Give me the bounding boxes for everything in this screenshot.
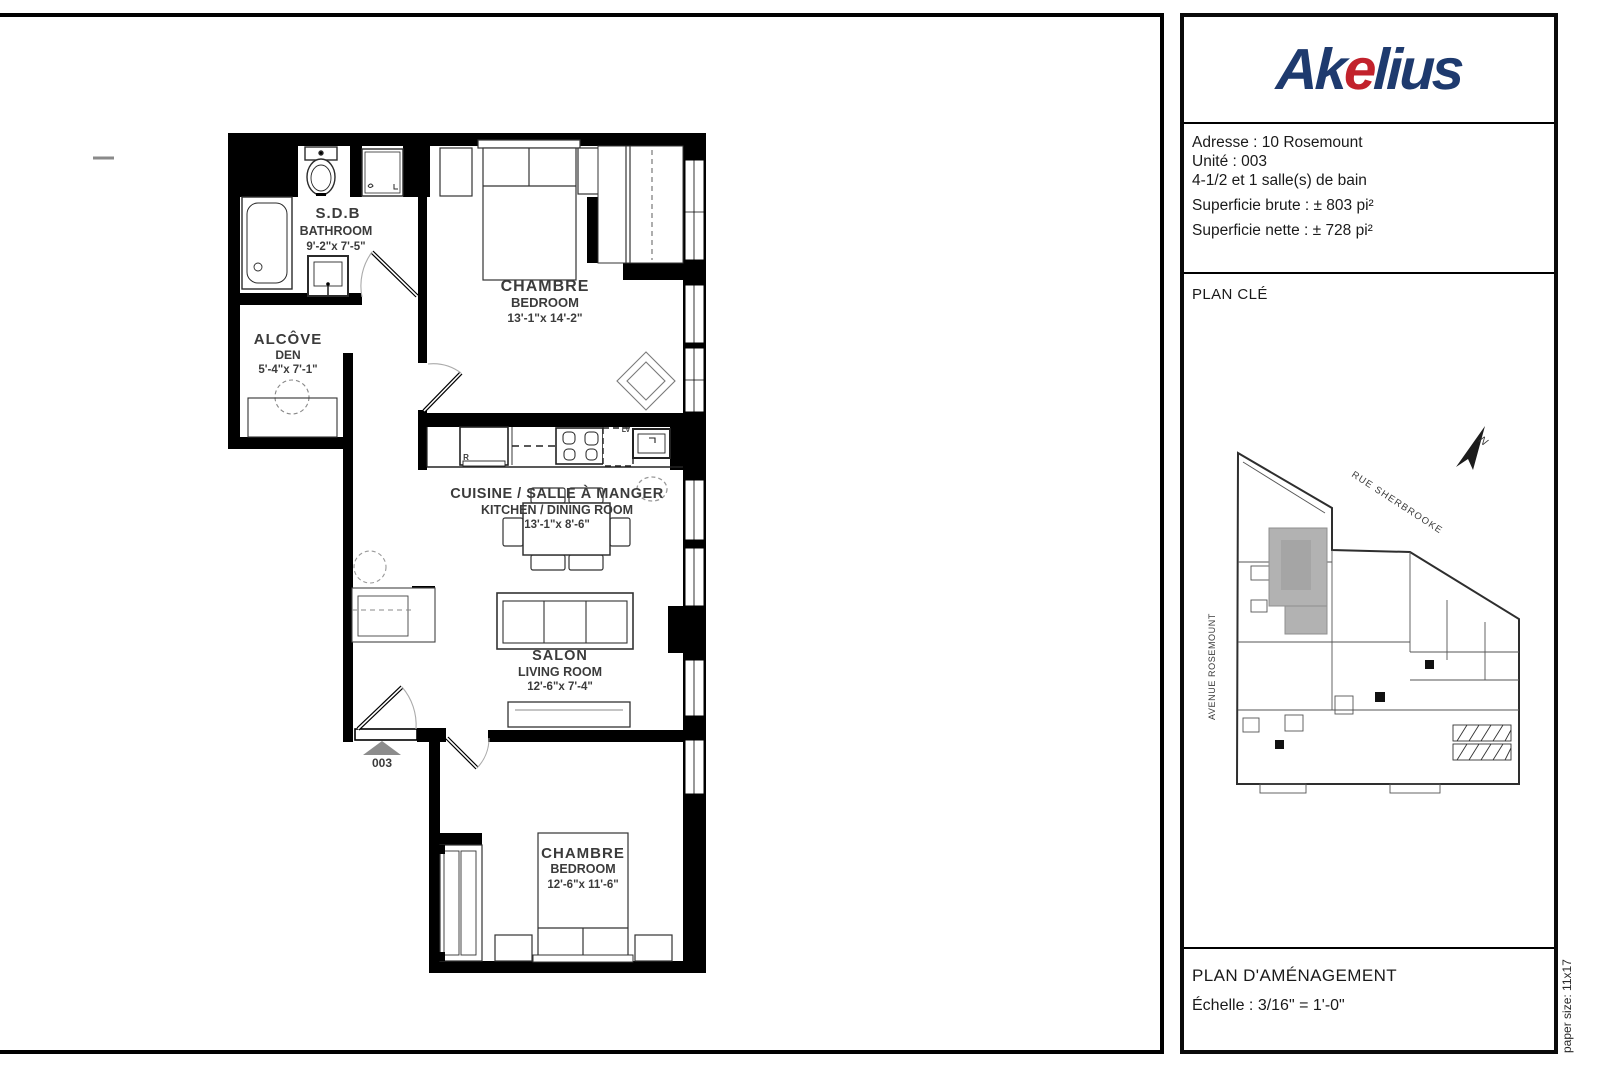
living-label-en: LIVING ROOM	[518, 665, 602, 679]
bedroom-bottom-door	[447, 738, 489, 768]
toilet	[305, 147, 337, 196]
bedroom-bottom-dims: 12'-6"x 11'-6"	[547, 879, 618, 891]
tv-console	[508, 702, 630, 727]
bedroom-top-label-en: BEDROOM	[511, 295, 579, 310]
floor-plan-sheet: { "floor_plan": { "unit_marker": "003", …	[0, 0, 1600, 1077]
closet-bottom	[438, 845, 482, 961]
logo-text-start: Ak	[1275, 37, 1345, 102]
hall-closet	[352, 588, 435, 642]
bathroom-label-en: BATHROOM	[300, 224, 373, 238]
bathroom-label-fr: S.D.B	[315, 205, 360, 222]
logo-section: Akelius	[1184, 17, 1554, 124]
unit-floor-plan: 003 S.D.B BATHROOM 9'-2"x 7'-5" ALCÔVE D…	[93, 133, 706, 973]
kitchen-sink	[633, 429, 670, 458]
unit-line: Unité : 003	[1192, 152, 1554, 171]
net-area-line: Superficie nette : ± 728 pi²	[1192, 221, 1554, 240]
title-block-panel: Akelius Adresse : 10 Rosemount Unité : 0…	[1180, 13, 1558, 1054]
akelius-logo: Akelius	[1275, 36, 1463, 103]
unit-info-section: Adresse : 10 Rosemount Unité : 003 4-1/2…	[1184, 124, 1554, 274]
corner-table	[617, 352, 675, 410]
kitchen-dims: 13'-1"x 8'-6"	[524, 519, 590, 531]
vestibule-fixtures	[352, 551, 435, 642]
layout-line: 4-1/2 et 1 salle(s) de bain	[1192, 171, 1554, 190]
scale-line: Échelle : 3/16" = 1'-0"	[1192, 997, 1554, 1015]
alcove-furniture	[248, 380, 337, 437]
kitchen-label-en: KITCHEN / DINING ROOM	[481, 503, 633, 517]
dishwasher-label: LV	[622, 427, 631, 434]
bedroom-top-door	[424, 364, 461, 411]
entrance-door	[355, 687, 417, 740]
logo-text-end: lius	[1373, 37, 1463, 102]
fridge-label: R	[463, 453, 469, 462]
sofa	[497, 593, 633, 649]
entrance-arrow-icon	[363, 741, 401, 755]
bedroom-top-dims: 13'-1"x 14'-2"	[507, 311, 582, 325]
entrance-marker: 003	[363, 741, 401, 770]
closet-top	[598, 146, 683, 263]
shower	[362, 149, 403, 196]
kitchen-label-fr: CUISINE / SALLE À MANGER	[450, 485, 663, 502]
key-plan-title: PLAN CLÉ	[1192, 286, 1554, 303]
bedroom-bottom-label-en: BEDROOM	[550, 862, 615, 876]
address-line: Adresse : 10 Rosemount	[1192, 133, 1554, 152]
living-label-fr: SALON	[532, 648, 588, 664]
bed-top	[478, 140, 580, 280]
key-plan-section: PLAN CLÉ	[1184, 274, 1554, 949]
alcove-label-fr: ALCÔVE	[254, 330, 323, 348]
bathroom-door	[361, 252, 417, 297]
gross-area-line: Superficie brute : ± 803 pi²	[1192, 196, 1554, 215]
bedroom-bottom-label-fr: CHAMBRE	[541, 845, 625, 862]
living-dims: 12'-6"x 7'-4"	[527, 681, 593, 693]
plan-title: PLAN D'AMÉNAGEMENT	[1192, 966, 1554, 986]
paper-size-label: paper size: 11x17	[1560, 959, 1574, 1053]
footer-section: PLAN D'AMÉNAGEMENT Échelle : 3/16" = 1'-…	[1184, 949, 1554, 1050]
bedroom-top-label-fr: CHAMBRE	[501, 278, 590, 295]
bathroom-dims: 9'-2"x 7'-5"	[306, 241, 365, 253]
unit-number-label: 003	[372, 756, 392, 770]
alcove-dims: 5'-4"x 7'-1"	[258, 364, 317, 376]
bathroom-sink	[308, 256, 348, 296]
stove	[556, 428, 603, 464]
logo-text-accent: e	[1343, 37, 1375, 102]
alcove-label-en: DEN	[275, 348, 300, 362]
bathtub	[242, 197, 292, 289]
